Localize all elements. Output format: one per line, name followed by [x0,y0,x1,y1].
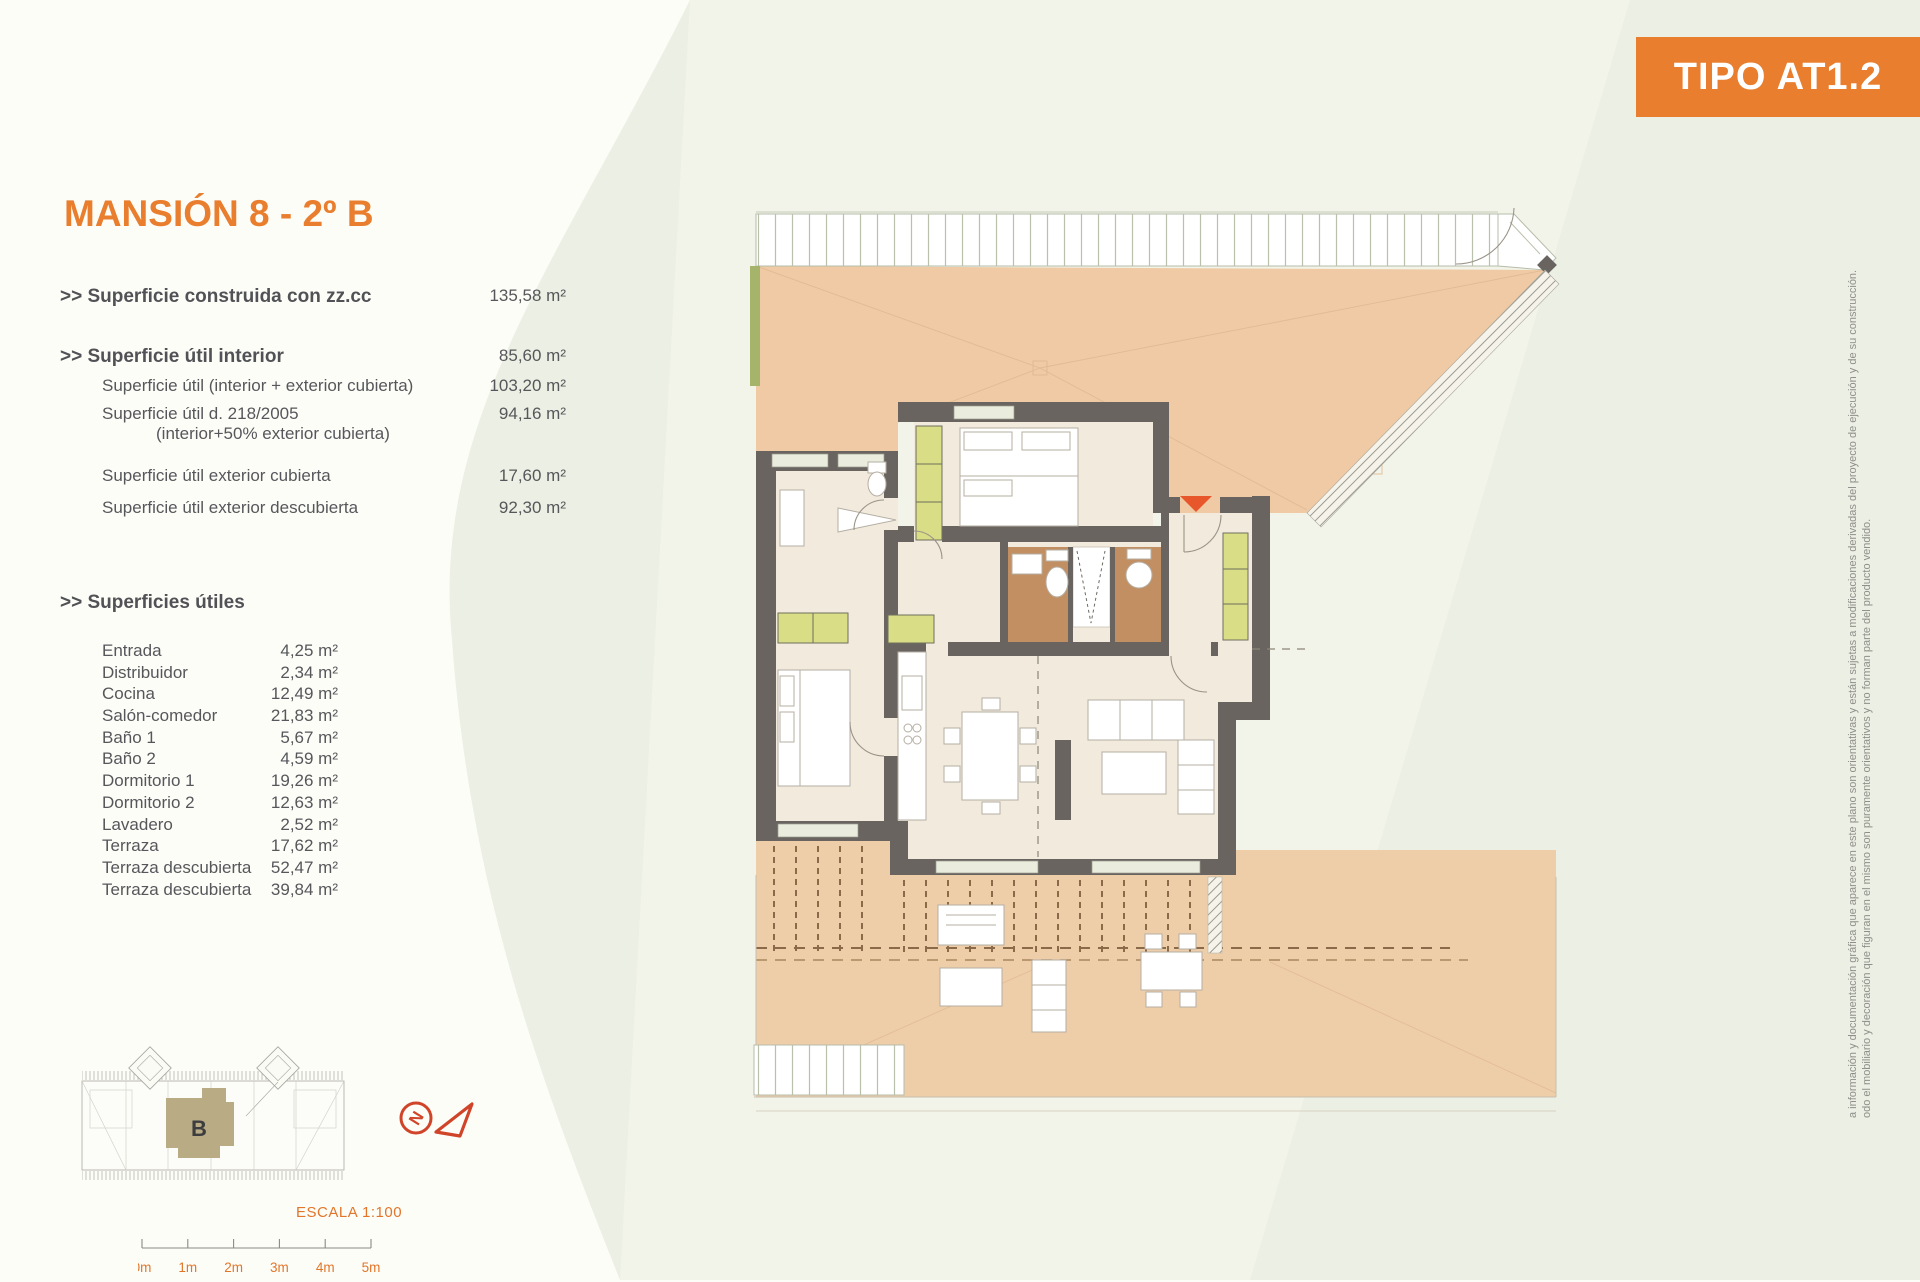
room-row: Terraza descubierta39,84 m² [102,880,338,902]
summary-row: Superficie útil exterior descubierta 92,… [60,498,566,518]
compass-icon: N [392,1082,502,1154]
room-value: 12,63 m² [271,793,338,813]
summary-value: 85,60 m² [499,346,566,366]
type-badge: TIPO AT1.2 [1636,37,1920,117]
room-label: Lavadero [102,815,173,835]
washer-icon [1126,549,1152,588]
room-value: 4,25 m² [280,641,338,661]
summary-label: >> Superficie construida con zz.cc [60,286,372,307]
toilet-icon [868,462,886,496]
summary-value: 94,16 m² [499,404,566,424]
bed-double [778,670,850,786]
disclaimer-text: a información y documentación gráfica qu… [1846,212,1874,1118]
room-label: Salón-comedor [102,706,217,726]
room-row: Entrada4,25 m² [102,641,338,663]
room-value: 2,34 m² [280,663,338,683]
terrace-railing-top [756,208,1557,275]
room-row: Baño 15,67 m² [102,728,338,750]
surface-summary: >> Superficie construida con zz.cc 135,5… [60,0,566,640]
room-value: 4,59 m² [280,749,338,769]
room-row: Baño 24,59 m² [102,749,338,771]
summary-row: Superficie útil d. 218/2005 (interior+50… [60,404,566,444]
summary-row: >> Superficie construida con zz.cc 135,5… [60,286,566,308]
summary-value: 135,58 m² [489,286,566,306]
scale-tick-label: 3m [270,1260,289,1275]
room-value: 17,62 m² [271,836,338,856]
scale-tick-label: 4m [316,1260,335,1275]
summary-row: Superficie útil (interior + exterior cub… [60,376,566,396]
type-badge-label: TIPO AT1.2 [1674,56,1882,99]
room-label: Baño 1 [102,728,156,748]
terrace-edge-railing [1208,877,1222,953]
room-value: 12,49 m² [271,684,338,704]
summary-row: Superficie útil exterior cubierta 17,60 … [60,466,566,486]
summary-value: 92,30 m² [499,498,566,518]
summary-value: 17,60 m² [499,466,566,486]
room-label: Terraza descubierta [102,880,251,900]
terrace-railing-bottom [754,1045,904,1095]
sun-lounger [938,905,1004,945]
summary-label: >> Superficie útil interior [60,346,284,367]
room-row: Terraza17,62 m² [102,836,338,858]
room-row: Cocina12,49 m² [102,684,338,706]
room-value: 39,84 m² [271,880,338,900]
disclaimer-line-1: a información y documentación gráfica qu… [1846,212,1860,1118]
floor-plan [750,200,1570,1115]
room-value: 19,26 m² [271,771,338,791]
room-row: Dormitorio 119,26 m² [102,771,338,793]
summary-value: 103,20 m² [489,376,566,396]
room-label: Dormitorio 1 [102,771,195,791]
room-row: Dormitorio 212,63 m² [102,793,338,815]
scale-tick-label: 0m [138,1260,151,1275]
summary-label: Superficie útil exterior descubierta [60,498,358,518]
dresser [780,490,804,546]
summary-label: Superficie útil exterior cubierta [60,466,331,486]
summary-label: Superficie útil (interior + exterior cub… [60,376,413,396]
room-label: Dormitorio 2 [102,793,195,813]
room-label: Terraza descubierta [102,858,251,878]
bed-twin [960,428,1078,526]
room-value: 5,67 m² [280,728,338,748]
key-plan-unit-label: B [191,1116,207,1141]
scale-tick-label: 5m [362,1260,380,1275]
room-label: Terraza [102,836,159,856]
planter-strip [750,266,760,386]
room-value: 52,47 m² [271,858,338,878]
summary-label-line2: (interior+50% exterior cubierta) [60,424,566,444]
outdoor-chaise [1032,960,1066,1032]
summary-label: Superficie útil d. 218/2005 [60,404,299,424]
scale-label: ESCALA 1:100 [296,1204,402,1221]
room-value: 21,83 m² [271,706,338,726]
compass-north-label: N [405,1108,428,1128]
scale-tick-label: 2m [224,1260,243,1275]
scale-tick-label: 1m [178,1260,197,1275]
room-label: Baño 2 [102,749,156,769]
disclaimer-line-2: odo el mobiliario y decoración que figur… [1860,212,1874,1118]
compass-arrow [436,1104,472,1136]
scale-bar: 0m 1m 2m 3m 4m 5m [138,1236,380,1282]
room-row: Distribuidor2,34 m² [102,663,338,685]
room-label: Cocina [102,684,155,704]
room-row: Salón-comedor21,83 m² [102,706,338,728]
useful-surfaces-heading: >> Superficies útiles [60,592,245,614]
key-plan: B [68,1042,358,1192]
useful-surfaces-list: Entrada4,25 m² Distribuidor2,34 m² Cocin… [102,641,338,901]
room-row: Lavadero2,52 m² [102,815,338,837]
summary-row: >> Superficie útil interior 85,60 m² [60,346,566,368]
media-wall [1055,740,1071,820]
room-label: Entrada [102,641,162,661]
lower-terrace [754,841,1556,1111]
kitchen-counter [898,652,926,820]
room-label: Distribuidor [102,663,188,683]
room-row: Terraza descubierta52,47 m² [102,858,338,880]
sun-lounger [940,968,1002,1006]
room-value: 2,52 m² [280,815,338,835]
